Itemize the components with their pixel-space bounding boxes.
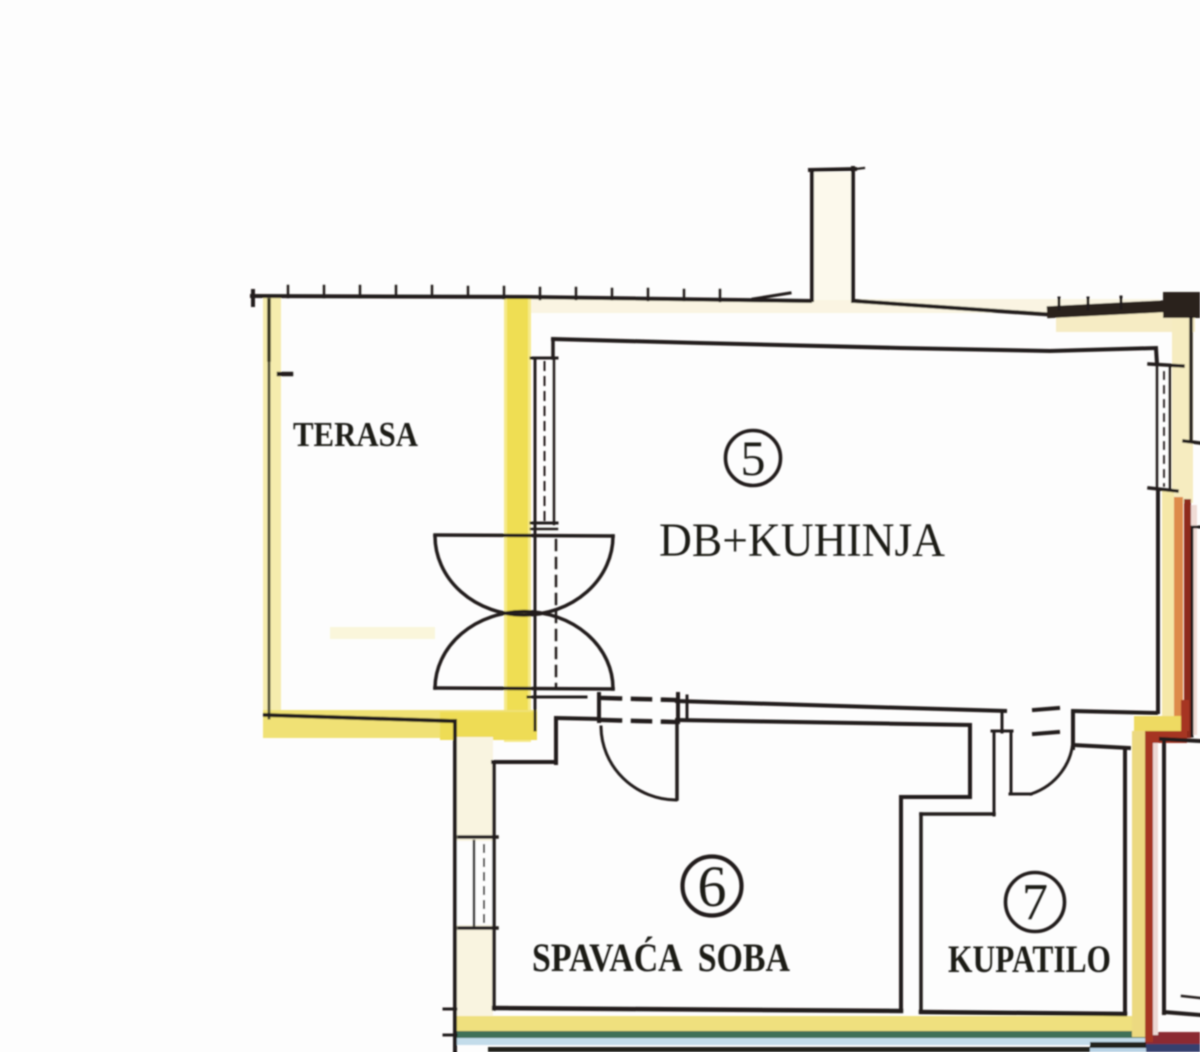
svg-text:KUPATILO: KUPATILO: [948, 938, 1111, 981]
svg-text:6: 6: [698, 854, 727, 919]
svg-text:TERASA: TERASA: [293, 416, 418, 454]
svg-text:7: 7: [1022, 874, 1048, 931]
svg-text:SPAVAĆA SOBA: SPAVAĆA SOBA: [532, 935, 790, 980]
svg-text:5: 5: [741, 430, 766, 486]
svg-text:DB+KUHINJA: DB+KUHINJA: [659, 514, 945, 567]
